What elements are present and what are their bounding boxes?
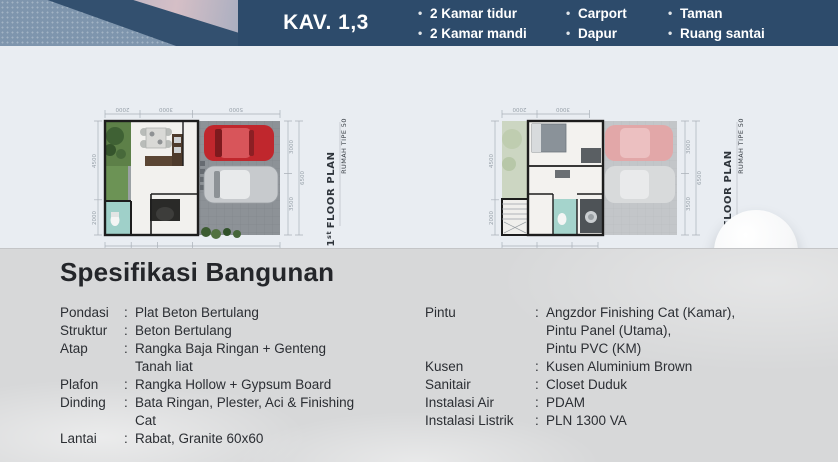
faded-white-car [605,166,675,203]
feature-label: 2 Kamar tidur [430,6,517,21]
spec-label: Pintu [425,304,535,322]
plan-title: 1stFLOOR PLAN [325,151,337,246]
svg-text:6500: 6500 [300,171,306,185]
bullet-icon: • [668,6,680,20]
spec-row: Sanitair : Closet Duduk [425,376,820,394]
spec-value: Plat Beton Bertulang [135,304,420,322]
spec-row: Struktur : Beton Bertulang [60,322,420,340]
spec-row: Pintu : Angzdor Finishing Cat (Kamar), P… [425,304,820,358]
svg-text:2000: 2000 [512,106,526,112]
specs-section: Spesifikasi Bangunan Pondasi : Plat Beto… [0,248,838,462]
feature-label: 2 Kamar mandi [430,26,527,41]
bathroom [105,201,131,235]
feature-item: • Carport [566,3,666,23]
bullet-icon: • [566,6,578,20]
kav-label: KAV. 1,3 [238,0,414,46]
spec-row: Kusen : Kusen Aluminium Brown [425,358,820,376]
spec-label: Lantai [60,430,124,448]
spec-value: PLN 1300 VA [546,412,820,430]
feature-item: • Dapur [566,23,666,43]
svg-text:2000: 2000 [489,211,495,225]
plan-subtitle: RUMAH TIPE 50 [737,118,745,174]
bullet-icon: • [566,26,578,40]
feature-item: • 2 Kamar tidur [418,3,568,23]
dresser [555,170,570,178]
spec-label: Dinding [60,394,124,412]
spec-label: Atap [60,340,124,358]
spec-row: Atap : Rangka Baja Ringan + Genteng Tana… [60,340,420,376]
feature-column-3: • Taman • Ruang santai [668,3,808,43]
spec-label: Struktur [60,322,124,340]
feature-label: Carport [578,6,627,21]
svg-text:4500: 4500 [92,154,98,168]
svg-text:2000: 2000 [115,106,129,112]
spec-colon: : [124,322,135,340]
spec-colon: : [124,430,135,448]
feature-label: Dapur [578,26,617,41]
plan-artwork [104,121,280,239]
hero-photo [0,0,238,46]
work-desk [150,199,180,221]
spec-row: Instalasi Air : PDAM [425,394,820,412]
header-bar: KAV. 1,3 • 2 Kamar tidur • 2 Kamar mandi… [0,0,838,46]
spec-value: Bata Ringan, Plester, Aci & Finishing Ca… [135,394,420,430]
spec-colon: : [124,304,135,322]
bullet-icon: • [668,26,680,40]
feature-item: • Taman [668,3,808,23]
spec-value: Beton Bertulang [135,322,420,340]
spec-value: Rabat, Granite 60x60 [135,430,420,448]
svg-text:4500: 4500 [489,154,495,168]
spec-label: Instalasi Listrik [425,412,535,430]
spec-value: PDAM [546,394,820,412]
spec-label: Plafon [60,376,124,394]
svg-text:3500: 3500 [686,197,692,211]
specs-left-column: Pondasi : Plat Beton Bertulang Struktur … [60,304,420,448]
upper-bathroom [553,199,577,235]
house-interior [131,121,197,235]
spec-colon: : [535,304,546,322]
spec-colon: : [124,394,135,412]
feature-column-2: • Carport • Dapur [566,3,666,43]
plan-artwork [502,121,677,235]
spec-label: Pondasi [60,304,124,322]
white-car [204,166,278,203]
svg-text:3000: 3000 [686,140,692,154]
spec-label: Instalasi Air [425,394,535,412]
spec-value: Angzdor Finishing Cat (Kamar), Pintu Pan… [546,304,820,358]
spec-row: Instalasi Listrik : PLN 1300 VA [425,412,820,430]
feature-item: • Ruang santai [668,23,808,43]
specs-right-column: Pintu : Angzdor Finishing Cat (Kamar), P… [425,304,820,430]
spec-value: Kusen Aluminium Brown [546,358,820,376]
svg-text:3000: 3000 [289,140,295,154]
spec-colon: : [535,358,546,376]
wardrobe [581,148,601,163]
spec-value: Rangka Baja Ringan + Genteng Tanah liat [135,340,420,376]
spec-colon: : [535,376,546,394]
spec-row: Plafon : Rangka Hollow + Gypsum Board [60,376,420,394]
bullet-icon: • [418,6,430,20]
spec-colon: : [535,412,546,430]
spec-row: Lantai : Rabat, Granite 60x60 [60,430,420,448]
spec-row: Pondasi : Plat Beton Bertulang [60,304,420,322]
spec-label: Sanitair [425,376,535,394]
svg-text:6500: 6500 [697,171,703,185]
spec-value: Rangka Hollow + Gypsum Board [135,376,420,394]
laundry-room [580,199,602,233]
spec-value: Closet Duduk [546,376,820,394]
bed [532,124,566,152]
spec-label: Kusen [425,358,535,376]
spec-colon: : [124,340,135,358]
red-car [204,125,274,161]
svg-text:3000: 3000 [556,106,570,112]
floor-plans-section: 2000 3000 5000 4500 2000 3000 3500 6500 … [0,46,838,248]
svg-text:2000: 2000 [92,211,98,225]
specs-title: Spesifikasi Bangunan [60,257,334,288]
feature-label: Taman [680,6,723,21]
plan-subtitle: RUMAH TIPE 50 [340,118,348,174]
faded-red-car [605,125,673,161]
spec-row: Dinding : Bata Ringan, Plester, Aci & Fi… [60,394,420,430]
feature-label: Ruang santai [680,26,765,41]
brochure-page: KAV. 1,3 • 2 Kamar tidur • 2 Kamar mandi… [0,0,838,462]
feature-item: • 2 Kamar mandi [418,23,568,43]
spec-colon: : [535,394,546,412]
svg-text:3000: 3000 [159,106,173,112]
svg-text:3500: 3500 [289,197,295,211]
spec-colon: : [124,376,135,394]
feature-column-1: • 2 Kamar tidur • 2 Kamar mandi [418,3,568,43]
svg-text:5000: 5000 [229,106,243,112]
bullet-icon: • [418,26,430,40]
stairs [502,199,528,235]
